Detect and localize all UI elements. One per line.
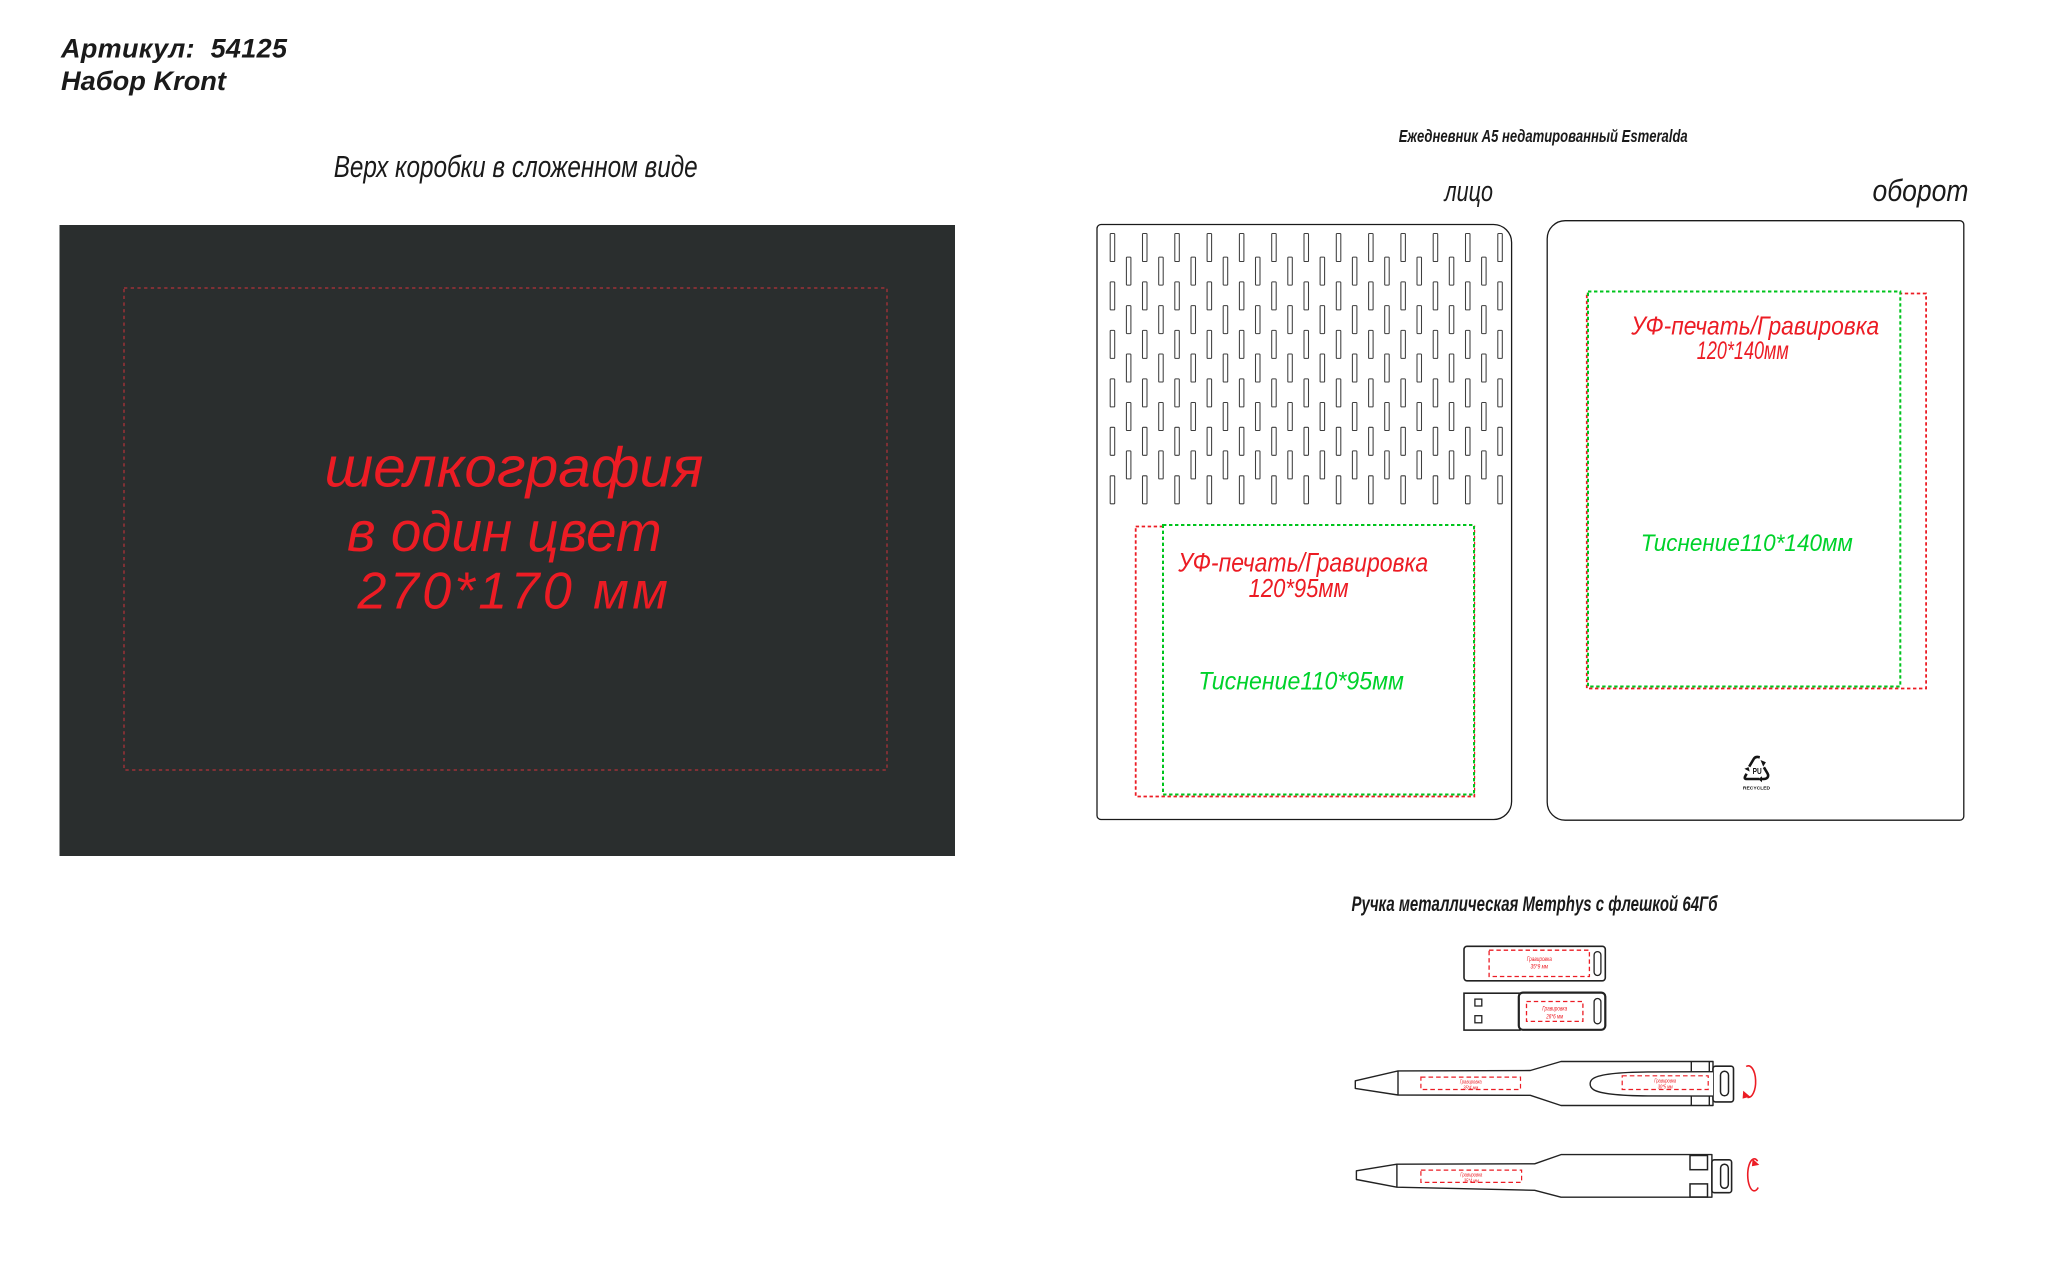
svg-text:Гравировка: Гравировка [1527,957,1553,963]
svg-text:шелкография: шелкография [325,435,704,499]
svg-text:30*5 мм: 30*5 мм [1658,1084,1673,1090]
svg-text:оборот: оборот [1873,173,1969,208]
svg-text:120*95мм: 120*95мм [1249,575,1349,603]
svg-text:Тиснение110*95мм: Тиснение110*95мм [1198,668,1404,696]
svg-text:Ежедневник А5 недатированный E: Ежедневник А5 недатированный Esmeralda [1399,126,1688,146]
svg-text:Верх коробки в сложенном виде: Верх коробки в сложенном виде [334,149,698,184]
svg-text:PU: PU [1753,766,1762,776]
svg-text:в один цвет: в один цвет [347,500,662,564]
svg-text:35*4 мм: 35*4 мм [1463,1085,1478,1091]
svg-text:Набор Kront: Набор Kront [61,66,227,96]
svg-text:35*4 мм: 35*4 мм [1464,1178,1479,1184]
svg-text:УФ-печать/Гравировка: УФ-печать/Гравировка [1177,548,1428,578]
svg-text:35*9 мм: 35*9 мм [1531,965,1549,971]
svg-text:270*170 мм: 270*170 мм [357,563,668,621]
svg-text:УФ-печать/Гравировка: УФ-печать/Гравировка [1630,311,1879,341]
svg-text:лицо: лицо [1443,176,1493,208]
svg-text:Артикул: 54125: Артикул: 54125 [60,34,288,64]
svg-text:Ручка металлическая Memphys с: Ручка металлическая Memphys с флешкой 64… [1352,893,1719,916]
svg-text:Тиснение110*140мм: Тиснение110*140мм [1641,530,1853,557]
svg-text:26*6 мм: 26*6 мм [1545,1015,1563,1021]
svg-text:120*140мм: 120*140мм [1697,337,1789,365]
svg-text:RECYCLED: RECYCLED [1743,785,1771,790]
svg-text:Гравировка: Гравировка [1542,1007,1568,1013]
